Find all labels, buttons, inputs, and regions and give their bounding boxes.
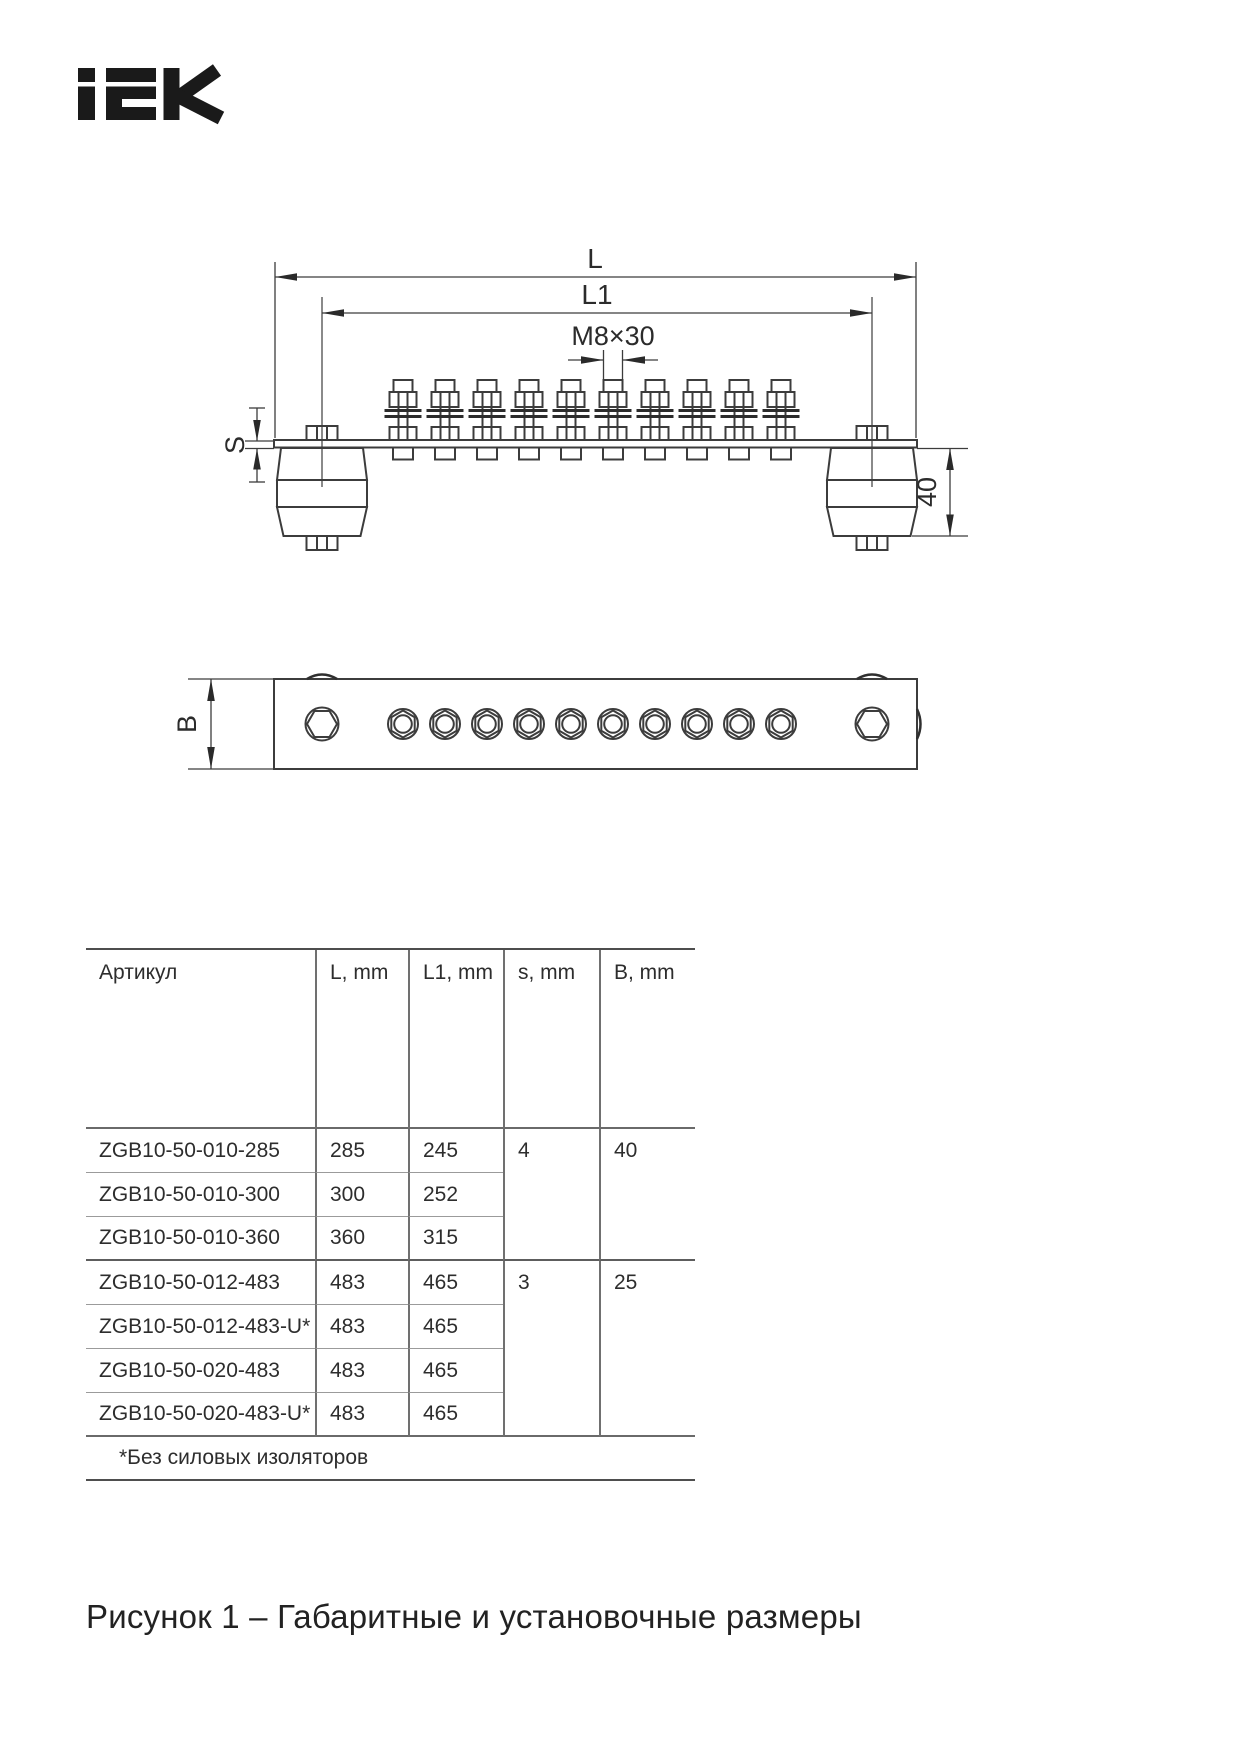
cell-l: 483 [315, 1305, 408, 1349]
plan-plate [274, 679, 917, 769]
dim-S-label: S [220, 436, 250, 454]
cell-l: 483 [315, 1349, 408, 1393]
cell-l1: 465 [408, 1393, 503, 1437]
table-footnote: *Без силовых изоляторов [86, 1437, 695, 1481]
cell-l1: 315 [408, 1217, 503, 1261]
cell-l1: 252 [408, 1173, 503, 1217]
cell-article: ZGB10-50-012-483-U* [86, 1305, 315, 1349]
dimension-S: S [220, 408, 274, 482]
cell-s-merged: 4 [503, 1129, 599, 1261]
dim-40-label: 40 [912, 477, 942, 507]
cell-l1: 245 [408, 1129, 503, 1173]
dimension-L1: L1 [322, 279, 872, 317]
technical-drawing: L L1 M8×30 S [0, 0, 1238, 820]
cell-l: 483 [315, 1393, 408, 1437]
cell-l: 360 [315, 1217, 408, 1261]
col-header-article: Артикул [86, 950, 315, 1129]
dim-B-label: B [172, 715, 202, 733]
col-header-l1: L1, mm [408, 950, 503, 1129]
dim-L-label: L [587, 243, 603, 274]
cell-article: ZGB10-50-012-483 [86, 1261, 315, 1305]
cell-l1: 465 [408, 1349, 503, 1393]
cell-b-merged: 25 [599, 1261, 695, 1437]
cell-article: ZGB10-50-020-483 [86, 1349, 315, 1393]
cell-l: 483 [315, 1261, 408, 1305]
cell-b-merged: 40 [599, 1129, 695, 1261]
cell-s-merged: 3 [503, 1261, 599, 1437]
cell-l: 300 [315, 1173, 408, 1217]
plan-terminal-nuts [388, 709, 796, 739]
col-header-l: L, mm [315, 950, 408, 1129]
cell-l: 285 [315, 1129, 408, 1173]
dimensions-table: Артикул L, mm L1, mm s, mm B, mm ZGB10-5… [86, 948, 695, 1481]
document-page: IEK [0, 0, 1238, 1737]
col-header-b: B, mm [599, 950, 695, 1129]
dim-thread-label: M8×30 [571, 321, 654, 351]
plan-view [274, 675, 921, 770]
dimension-40: 40 [912, 449, 968, 537]
cell-article: ZGB10-50-010-300 [86, 1173, 315, 1217]
dim-L1-label: L1 [581, 279, 612, 310]
dimension-B: B [172, 679, 274, 769]
busbar-plate [274, 440, 917, 448]
figure-caption: Рисунок 1 – Габаритные и установочные ра… [86, 1598, 862, 1636]
cell-article: ZGB10-50-010-360 [86, 1217, 315, 1261]
cell-l1: 465 [408, 1305, 503, 1349]
cell-l1: 465 [408, 1261, 503, 1305]
dimension-M8x30: M8×30 [568, 321, 658, 380]
cell-article: ZGB10-50-010-285 [86, 1129, 315, 1173]
col-header-s: s, mm [503, 950, 599, 1129]
cell-article: ZGB10-50-020-483-U* [86, 1393, 315, 1437]
